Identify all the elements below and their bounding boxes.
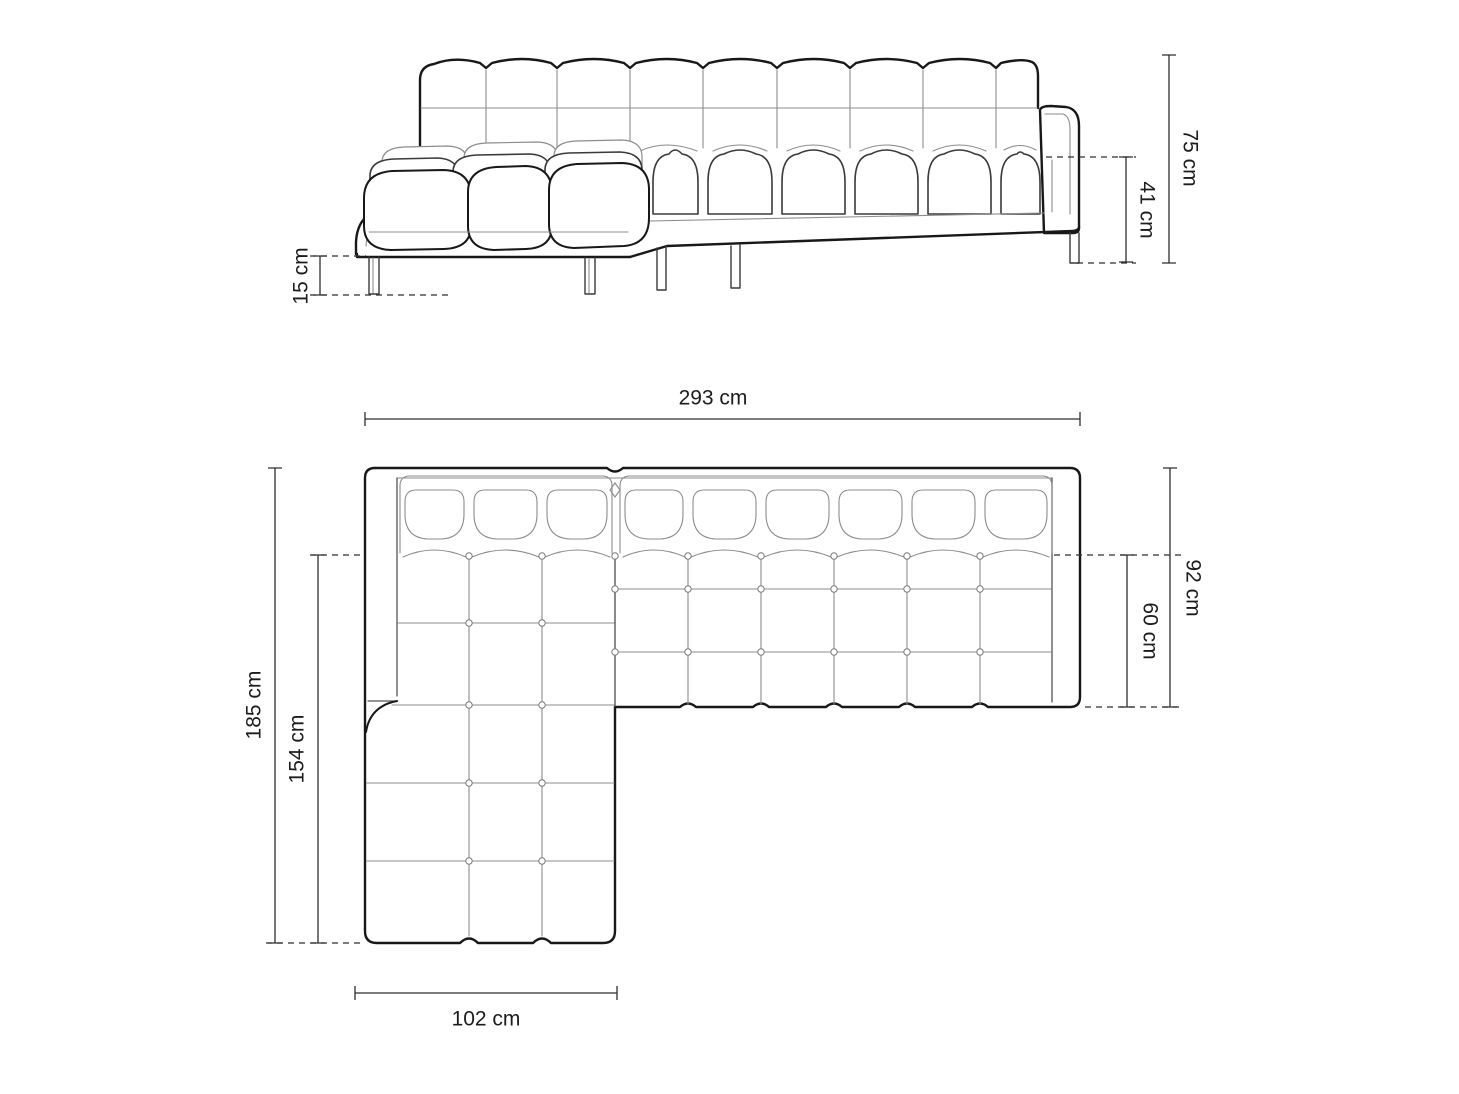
tuft-button [831, 649, 837, 655]
tuft-button [466, 780, 472, 786]
chaise-cushion [468, 166, 552, 250]
seat-cushion [782, 150, 845, 214]
dimension-line-total-depth [268, 468, 282, 943]
tuft-button [685, 553, 691, 559]
tuft-button [539, 620, 545, 626]
tuft-button [904, 649, 910, 655]
tuft-button [539, 702, 545, 708]
seat-cushion [653, 150, 698, 214]
tuft-button [685, 649, 691, 655]
tuft-button [685, 586, 691, 592]
seat-cushion [928, 150, 991, 214]
dimension-label-leg-height: 15 cm [291, 247, 312, 304]
dimension-line-total-height [1162, 55, 1176, 263]
tuft-button [758, 649, 764, 655]
tuft-button [612, 649, 618, 655]
dimension-line-seat-height [1119, 157, 1133, 262]
tuft-button [977, 553, 983, 559]
tuft-button [466, 553, 472, 559]
tuft-button [758, 553, 764, 559]
seat-cushion [855, 150, 918, 214]
front-elevation-view [310, 55, 1176, 295]
front-left-leg [369, 257, 379, 294]
tuft-button [466, 858, 472, 864]
tuft-button [612, 586, 618, 592]
dimension-label-total-width: 293 cm [679, 388, 748, 409]
dimension-line-chaise-depth [311, 555, 325, 943]
dimension-label-total-depth: 185 cm [244, 671, 265, 740]
tuft-button [904, 553, 910, 559]
chaise-front-cushions [364, 163, 649, 250]
dimension-line-body-depth [1163, 468, 1177, 707]
sofa-dimension-diagram: 75 cm 41 cm 15 cm 293 cm 185 cm 154 cm 9… [0, 0, 1459, 1094]
tuft-button [539, 780, 545, 786]
main-plinth-bottom-edge [630, 227, 1079, 257]
tuft-button [539, 858, 545, 864]
seat-cushion [708, 150, 772, 214]
dimension-line-leg-height [313, 256, 327, 295]
tuft-button [977, 649, 983, 655]
middle-right-leg [731, 245, 740, 288]
tuft-button [977, 586, 983, 592]
dimension-label-chaise-depth: 154 cm [287, 715, 308, 784]
chaise-cushion [364, 170, 471, 250]
middle-left-leg [657, 246, 666, 290]
right-arm [1040, 106, 1079, 233]
tuft-button [466, 702, 472, 708]
seat-cushion [1001, 152, 1040, 214]
tuft-button [612, 553, 618, 559]
dimension-label-seat-depth: 60 cm [1140, 602, 1161, 659]
dimension-line-chaise-width [355, 986, 617, 1000]
dimension-line-total-width [365, 412, 1080, 426]
front-right-leg [585, 258, 595, 294]
tuft-button [466, 620, 472, 626]
back-right-leg [1070, 233, 1079, 263]
tuft-button [831, 553, 837, 559]
technical-drawing [0, 0, 1459, 1094]
dimension-label-total-height: 75 cm [1180, 129, 1201, 186]
chaise-plinth-bottom-edge [357, 254, 630, 257]
tuft-button [831, 586, 837, 592]
dimension-label-body-depth: 92 cm [1183, 559, 1204, 616]
tuft-button [539, 553, 545, 559]
tuft-button [758, 586, 764, 592]
tuft-button [904, 586, 910, 592]
chaise-cushion [549, 163, 649, 248]
dimension-line-seat-depth [1120, 555, 1134, 707]
dimension-label-chaise-width: 102 cm [452, 1009, 521, 1030]
dimension-label-seat-height: 41 cm [1137, 181, 1158, 238]
top-plan-view [266, 412, 1182, 1000]
